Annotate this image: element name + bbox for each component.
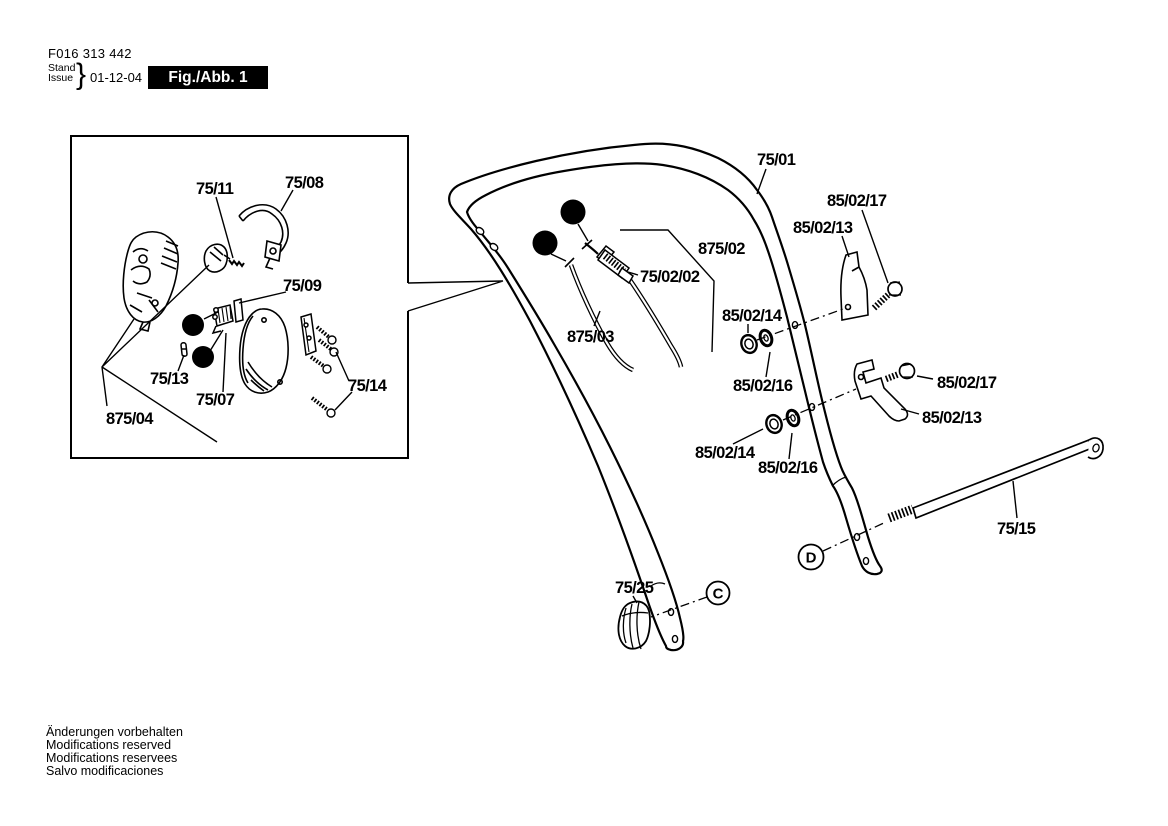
badge-d-main: D: [799, 545, 824, 570]
leader-85-02-17-right: [917, 376, 933, 379]
part-label-85-02-16-upper: 85/02/16: [733, 377, 793, 395]
screw: [312, 398, 335, 417]
badge-a-main: A: [561, 200, 586, 225]
leader-75-15: [1013, 481, 1017, 518]
mounting-plate: [301, 314, 316, 355]
svg-text:B: B: [198, 350, 209, 367]
badge-b-main: B: [533, 231, 558, 256]
bowden-cables: [565, 240, 681, 370]
svg-text:C: C: [713, 586, 724, 603]
part-label-85-02-13-top: 85/02/13: [793, 219, 853, 237]
leader-85-02-16-lower: [789, 433, 792, 459]
part-label-875-03: 875/03: [567, 328, 614, 346]
washer-85-02-16-upper: [758, 329, 774, 348]
part-label-85-02-14-upper: 85/02/14: [722, 307, 783, 325]
hex-bolt-85-02-17-mid: [886, 364, 915, 380]
cable-adjuster-75-02-02: [597, 246, 633, 283]
part-label-75-02-02: 75/02/02: [640, 268, 700, 286]
part-label-85-02-17-top: 85/02/17: [827, 192, 887, 210]
leader-75-01: [757, 169, 766, 194]
trigger-button-75-11: [204, 244, 230, 272]
svg-text:A: A: [568, 205, 579, 222]
part-label-75-01: 75/01: [757, 151, 796, 169]
cable-875-03: [571, 265, 633, 370]
part-label-85-02-13-right: 85/02/13: [922, 409, 982, 427]
badge-a-inset: A: [182, 314, 204, 336]
badge-b-inset: B: [192, 346, 214, 368]
drive-rod-75-15: [889, 438, 1103, 518]
part-label-75-09: 75/09: [283, 277, 322, 295]
leader-75-07: [223, 333, 226, 392]
leader-85-02-14-lower: [733, 429, 763, 444]
part-label-75-11: 75/11: [196, 180, 234, 198]
screw: [311, 357, 331, 373]
cable-clamp-75-07: [213, 299, 243, 333]
tube-flatten-tick: [651, 477, 846, 586]
leader-75-13: [178, 355, 184, 371]
leader-75-08: [281, 190, 293, 211]
part-label-85-02-16-lower: 85/02/16: [758, 459, 818, 477]
part-label-75-14: 75/14: [348, 377, 388, 395]
leader-badge-b-main: [551, 254, 566, 261]
cable-end-ticks: [565, 240, 592, 267]
part-label-75-25: 75/25: [615, 579, 654, 597]
leader-85-02-17-top: [862, 210, 888, 283]
flange-nut-85-02-14-upper: [739, 333, 759, 355]
part-label-85-02-14-lower: 85/02/14: [695, 444, 756, 462]
leader-85-02-13-top: [842, 236, 849, 257]
part-label-875-02: 875/02: [698, 240, 745, 258]
wing-knob-75-25: [618, 601, 650, 649]
svg-text:B: B: [540, 236, 551, 253]
flange-nut-85-02-14-lower: [764, 413, 784, 435]
leader-badge-a-main: [578, 224, 588, 241]
parts-diagram-page: F016 313 442 Stand Issue } 01-12-04 Fig.…: [0, 0, 1168, 826]
handlebar-holes: [475, 226, 869, 642]
svg-text:D: D: [806, 550, 817, 567]
bail-lever-75-08: [239, 205, 288, 269]
clamp-bracket-85-02-13-top: [841, 252, 868, 320]
part-label-875-04: 875/04: [106, 410, 154, 428]
leader-85-02-16-upper: [766, 352, 770, 377]
hex-bolt-85-02-17-top: [874, 282, 902, 308]
part-label-75-07: 75/07: [196, 391, 235, 409]
badge-c-main: C: [707, 582, 730, 605]
trigger-spring: [229, 260, 244, 266]
part-label-85-02-17-right: 85/02/17: [937, 374, 997, 392]
notice-line-es: Salvo modificaciones: [46, 765, 183, 778]
leader-75-09: [239, 292, 286, 303]
part-label-75-15: 75/15: [997, 520, 1036, 538]
part-label-75-08: 75/08: [285, 174, 324, 192]
modifications-notice: Änderungen vorbehalten Modifications res…: [46, 726, 183, 778]
leader-badge-b-inset: [210, 330, 223, 351]
pin-75-13: [181, 343, 187, 357]
switch-housing-right-half: [240, 309, 288, 393]
exploded-parts-diagram: A B 75/11 75/08 75/09 75/13 75/07 875/04…: [0, 0, 1168, 826]
svg-text:A: A: [188, 318, 199, 335]
part-label-75-13: 75/13: [150, 370, 189, 388]
switch-housing-left-half: [123, 232, 178, 331]
detail-wedge-lines: [408, 281, 503, 311]
